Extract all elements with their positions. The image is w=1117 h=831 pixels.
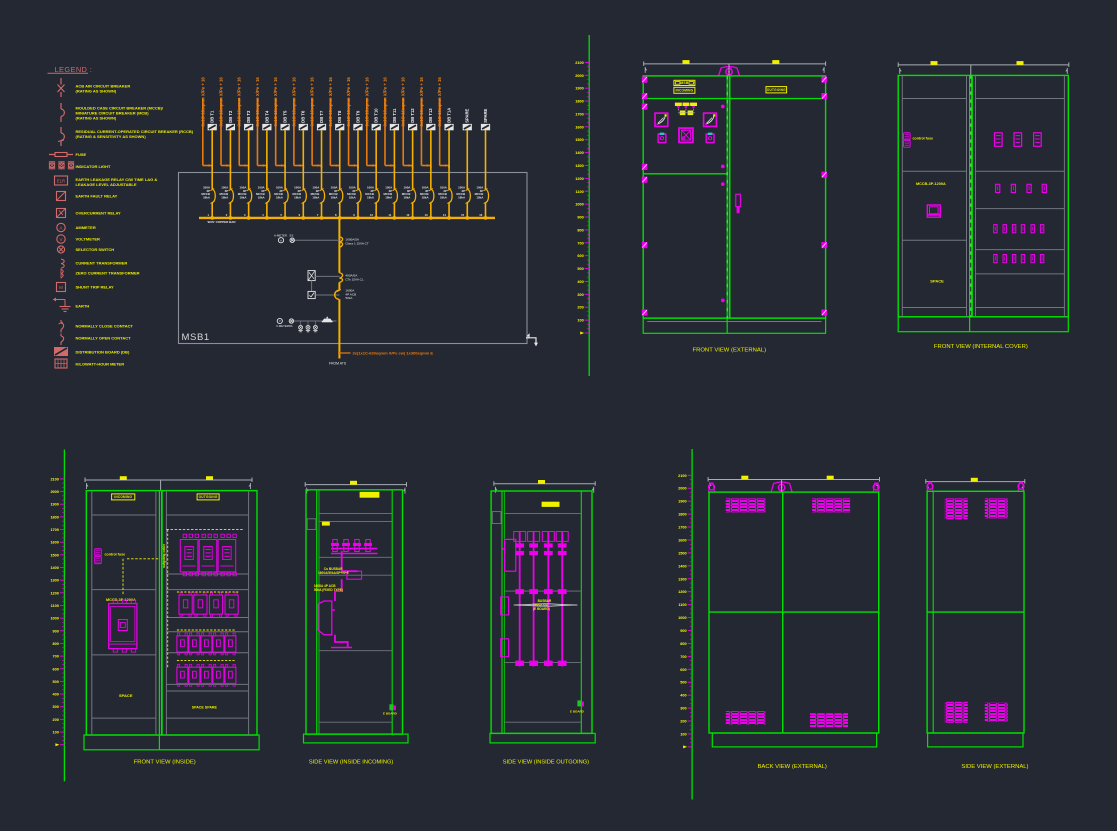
svg-text:M: M: [59, 285, 63, 290]
svg-text:DB T2: DB T2: [228, 110, 233, 123]
svg-text:EARTH FAULT RELAY: EARTH FAULT RELAY: [76, 194, 118, 199]
svg-text:3x1C-16sqmm X/Pe + 16: 3x1C-16sqmm X/Pe + 16: [237, 77, 242, 127]
svg-text:10: 10: [370, 213, 373, 217]
svg-text:KILOWATT-HOUR METER: KILOWATT-HOUR METER: [76, 362, 125, 367]
svg-text:E BOARD: E BOARD: [570, 710, 585, 714]
svg-text:1500: 1500: [575, 138, 583, 142]
svg-text:1900: 1900: [50, 503, 58, 507]
svg-text:3x1C-16sqmm X/Pe + 16: 3x1C-16sqmm X/Pe + 16: [401, 77, 406, 127]
svg-text:13: 13: [425, 213, 428, 217]
svg-text:18kA: 18kA: [240, 196, 248, 200]
svg-text:2100: 2100: [50, 477, 58, 481]
svg-text:50kA: 50kA: [345, 296, 353, 300]
svg-text:18kA: 18kA: [349, 196, 357, 200]
svg-text:14: 14: [443, 213, 446, 217]
svg-text:1200: 1200: [50, 591, 58, 595]
svg-text:DB T3: DB T3: [246, 110, 251, 123]
svg-text:18kA: 18kA: [422, 196, 430, 200]
svg-text:FRONT VIEW (INSIDE): FRONT VIEW (INSIDE): [134, 760, 196, 766]
svg-text:DB T12: DB T12: [410, 108, 415, 123]
svg-text:300: 300: [53, 705, 59, 709]
svg-text:1200: 1200: [575, 177, 583, 181]
svg-text:600: 600: [53, 667, 59, 671]
svg-text:900: 900: [577, 216, 583, 220]
svg-text:VOLTMETER: VOLTMETER: [76, 236, 100, 241]
svg-text:OVERCURRENT RELAY: OVERCURRENT RELAY: [76, 211, 122, 216]
svg-text:1500: 1500: [678, 551, 686, 555]
svg-text:15: 15: [461, 213, 464, 217]
svg-text:DISTRIBUTION BOARD (DB): DISTRIBUTION BOARD (DB): [76, 350, 130, 355]
svg-text:SHUNT TRIP RELAY: SHUNT TRIP RELAY: [76, 285, 115, 290]
svg-text:100: 100: [53, 731, 59, 735]
svg-text:V-METER: V-METER: [276, 324, 289, 328]
svg-text:INCOMING: INCOMING: [675, 88, 693, 92]
svg-text:700: 700: [577, 241, 583, 245]
svg-text:DB T7: DB T7: [319, 110, 324, 123]
svg-text:18kA: 18kA: [458, 196, 466, 200]
svg-text:1300: 1300: [50, 579, 58, 583]
svg-text:FROM ATS: FROM ATS: [329, 361, 347, 365]
svg-text:100: 100: [680, 732, 686, 736]
svg-text:500: 500: [680, 681, 686, 685]
svg-text:3x1C-16sqmm X/Pe + 16: 3x1C-16sqmm X/Pe + 16: [255, 77, 260, 127]
svg-text:400: 400: [577, 280, 583, 284]
svg-text:18kA: 18kA: [367, 196, 375, 200]
svg-text:SPACE: SPACE: [119, 693, 133, 698]
svg-text:MSB1: MSB1: [182, 332, 210, 343]
svg-text:DB T13: DB T13: [428, 108, 433, 123]
svg-text:1900: 1900: [575, 87, 583, 91]
svg-text:1100: 1100: [51, 604, 59, 608]
svg-text:A-METER: A-METER: [274, 233, 287, 237]
svg-text:FRONT VIEW (EXTERNAL): FRONT VIEW (EXTERNAL): [693, 347, 767, 353]
svg-text:E BOARD: E BOARD: [383, 712, 398, 716]
svg-text:800: 800: [577, 228, 583, 232]
svg-text:SPACE SPARE: SPACE SPARE: [192, 706, 218, 710]
svg-text:control fuse: control fuse: [105, 552, 126, 556]
svg-text:3x(1x1C-630sqmm X/Pe cw) 1x30: 3x(1x1C-630sqmm X/Pe cw) 1x300sqmm E: [353, 351, 434, 356]
svg-text:MCCB-3P-1200A: MCCB-3P-1200A: [916, 182, 946, 186]
svg-text:18kA: 18kA: [476, 196, 484, 200]
svg-text:2100: 2100: [575, 61, 583, 65]
svg-text:3x1C-16sqmm X/Pe + 16: 3x1C-16sqmm X/Pe + 16: [310, 77, 315, 127]
svg-text:3x1C-16sqmm X/Pe + 16: 3x1C-16sqmm X/Pe + 16: [419, 77, 424, 127]
svg-text:V: V: [279, 319, 281, 323]
svg-text:DB T6: DB T6: [301, 110, 306, 123]
svg-text:1800: 1800: [678, 513, 686, 517]
svg-text:DB T10: DB T10: [374, 108, 379, 123]
svg-text:1400: 1400: [50, 566, 58, 570]
svg-text:1000: 1000: [575, 203, 583, 207]
svg-text:ELR: ELR: [57, 179, 65, 184]
svg-text:2000: 2000: [678, 487, 686, 491]
svg-text:18kA: 18kA: [312, 196, 320, 200]
svg-text:BACK VIEW (EXTERNAL): BACK VIEW (EXTERNAL): [758, 764, 827, 770]
svg-text:3x1C-16sqmm X/Pe + 16: 3x1C-16sqmm X/Pe + 16: [291, 77, 296, 127]
svg-text:1500: 1500: [50, 553, 58, 557]
svg-text:SPARE: SPARE: [483, 108, 488, 122]
svg-text:800: 800: [53, 642, 59, 646]
svg-text:OUTGOING: OUTGOING: [199, 495, 218, 499]
svg-text:LEGEND :: LEGEND :: [55, 65, 93, 74]
svg-text:18kA: 18kA: [276, 196, 284, 200]
svg-text:900: 900: [53, 629, 59, 633]
svg-text:200: 200: [53, 718, 59, 722]
svg-text:100: 100: [577, 319, 583, 323]
svg-text:OUTGOING: OUTGOING: [767, 88, 786, 92]
svg-text:1000: 1000: [50, 617, 58, 621]
svg-text:18kA: 18kA: [221, 196, 229, 200]
svg-text:(E BOARD): (E BOARD): [533, 607, 550, 611]
svg-text:(RATING AS SHOWN): (RATING AS SHOWN): [76, 116, 117, 121]
svg-text:300: 300: [577, 293, 583, 297]
svg-text:50kA (FIXED TYPE): 50kA (FIXED TYPE): [314, 588, 343, 592]
svg-text:18kA: 18kA: [258, 196, 266, 200]
svg-text:300: 300: [680, 707, 686, 711]
svg-text:200: 200: [577, 306, 583, 310]
svg-text:1700: 1700: [50, 528, 58, 532]
svg-text:V: V: [59, 237, 62, 242]
svg-text:control fuse: control fuse: [913, 136, 934, 140]
svg-text:SPARE: SPARE: [465, 108, 470, 122]
svg-text:SELECTOR SWITCH: SELECTOR SWITCH: [76, 247, 115, 252]
svg-text:LEAKAGE LEVEL ADJUSTABLE: LEAKAGE LEVEL ADJUSTABLE: [76, 182, 137, 187]
svg-text:(RATING AS SHOWN): (RATING AS SHOWN): [76, 88, 117, 93]
svg-text:18kA: 18kA: [203, 196, 211, 200]
svg-text:1000: 1000: [678, 616, 686, 620]
svg-text:1800: 1800: [575, 100, 583, 104]
svg-text:DB T8: DB T8: [337, 110, 342, 123]
svg-text:INCOMING: INCOMING: [114, 495, 132, 499]
svg-text:2000: 2000: [575, 74, 583, 78]
svg-text:DB T4: DB T4: [264, 110, 269, 123]
svg-text:1700: 1700: [678, 526, 686, 530]
svg-text:INDICATOR LIGHT: INDICATOR LIGHT: [76, 164, 112, 169]
svg-text:SS: SS: [289, 233, 293, 237]
svg-text:AMMETER: AMMETER: [76, 225, 96, 230]
svg-text:A: A: [59, 225, 62, 230]
svg-text:DB T9: DB T9: [355, 110, 360, 123]
svg-text:SIDE VIEW (INSIDE OUTGOING): SIDE VIEW (INSIDE OUTGOING): [503, 760, 589, 766]
svg-text:1800: 1800: [50, 515, 58, 519]
svg-text:200: 200: [680, 720, 686, 724]
svg-text:NORMALLY OPEN CONTACT: NORMALLY OPEN CONTACT: [76, 336, 132, 341]
svg-text:SIDE VIEW (INSIDE INCOMING): SIDE VIEW (INSIDE INCOMING): [309, 760, 393, 766]
svg-text:600: 600: [577, 254, 583, 258]
svg-text:3x1C-16sqmm X/Pe + 16: 3x1C-16sqmm X/Pe + 16: [346, 77, 351, 127]
svg-text:3x1C-16sqmm X/Pe + 16: 3x1C-16sqmm X/Pe + 16: [383, 77, 388, 127]
svg-text:3x1C-16sqmm X/Pe + 16: 3x1C-16sqmm X/Pe + 16: [328, 77, 333, 127]
svg-text:3x1C-16sqmm X/Pe + 16: 3x1C-16sqmm X/Pe + 16: [219, 77, 224, 127]
svg-text:DB T11: DB T11: [392, 108, 397, 123]
svg-text:500: 500: [577, 267, 583, 271]
svg-text:1600A/50kA/3P+N+E: 1600A/50kA/3P+N+E: [318, 571, 349, 575]
svg-text:500: 500: [53, 680, 59, 684]
svg-text:1900: 1900: [678, 500, 686, 504]
svg-text:FUSE: FUSE: [76, 152, 87, 157]
svg-text:MSB: MSB: [680, 81, 688, 85]
svg-text:CTs 15VA CL: CTs 15VA CL: [345, 278, 363, 282]
svg-text:1400: 1400: [678, 564, 686, 568]
svg-text:DB T5: DB T5: [282, 110, 287, 123]
svg-text:SS: SS: [289, 324, 293, 328]
svg-text:700: 700: [53, 655, 59, 659]
svg-text:18kA: 18kA: [403, 196, 411, 200]
svg-text:1300: 1300: [575, 164, 583, 168]
svg-text:FRONT VIEW (INTERNAL COVER): FRONT VIEW (INTERNAL COVER): [934, 344, 1028, 350]
svg-text:1700: 1700: [575, 112, 583, 116]
svg-text:'BUS' COPPER BAR: 'BUS' COPPER BAR: [207, 220, 236, 224]
svg-text:SPACE: SPACE: [930, 279, 944, 284]
svg-text:700: 700: [680, 655, 686, 659]
svg-text:11: 11: [388, 213, 391, 217]
svg-text:18kA: 18kA: [440, 196, 448, 200]
svg-text:1400: 1400: [575, 151, 583, 155]
svg-text:outgoing cable: outgoing cable: [162, 544, 166, 568]
svg-text:Class 1 15VA CT: Class 1 15VA CT: [345, 242, 368, 246]
svg-text:400: 400: [53, 693, 59, 697]
svg-text:CURRENT TRANSFORMER: CURRENT TRANSFORMER: [76, 261, 128, 266]
svg-text:1100: 1100: [678, 603, 686, 607]
svg-text:16: 16: [479, 213, 482, 217]
svg-text:800: 800: [680, 642, 686, 646]
svg-text:2000: 2000: [50, 490, 58, 494]
svg-text:EARTH: EARTH: [76, 304, 90, 309]
svg-text:(RATING & SENSITIVITY AS S: (RATING & SENSITIVITY AS SHOWN): [76, 134, 147, 139]
svg-text:1600: 1600: [575, 125, 583, 129]
svg-text:3x1C-16sqmm X/Pe + 16: 3x1C-16sqmm X/Pe + 16: [437, 77, 442, 127]
svg-text:18kA: 18kA: [294, 196, 302, 200]
svg-text:600: 600: [680, 668, 686, 672]
svg-text:SIDE VIEW (EXTERNAL): SIDE VIEW (EXTERNAL): [961, 764, 1028, 770]
svg-text:3x1C-16sqmm X/Pe + 16: 3x1C-16sqmm X/Pe + 16: [200, 77, 205, 127]
svg-text:12: 12: [406, 213, 409, 217]
svg-text:1300: 1300: [678, 577, 686, 581]
svg-text:ZERO CURRENT TRANSFORMER: ZERO CURRENT TRANSFORMER: [76, 271, 140, 276]
svg-text:2100: 2100: [678, 474, 686, 478]
svg-text:900: 900: [680, 629, 686, 633]
svg-text:NORMALLY CLOSE CONTACT: NORMALLY CLOSE CONTACT: [76, 324, 134, 329]
svg-text:3x1C-16sqmm X/Pe + 16: 3x1C-16sqmm X/Pe + 16: [273, 77, 278, 127]
svg-text:DB T1: DB T1: [210, 110, 215, 123]
svg-text:1600: 1600: [678, 538, 686, 542]
svg-text:DB T1A: DB T1A: [446, 108, 451, 123]
svg-text:18kA: 18kA: [385, 196, 393, 200]
svg-text:3x1C-16sqmm X/Pe + 16: 3x1C-16sqmm X/Pe + 16: [364, 77, 369, 127]
svg-text:1200: 1200: [678, 590, 686, 594]
svg-text:400: 400: [680, 694, 686, 698]
svg-text:1600: 1600: [50, 541, 58, 545]
svg-text:1100: 1100: [575, 190, 583, 194]
svg-text:18kA: 18kA: [331, 196, 339, 200]
svg-text:A: A: [280, 238, 282, 242]
